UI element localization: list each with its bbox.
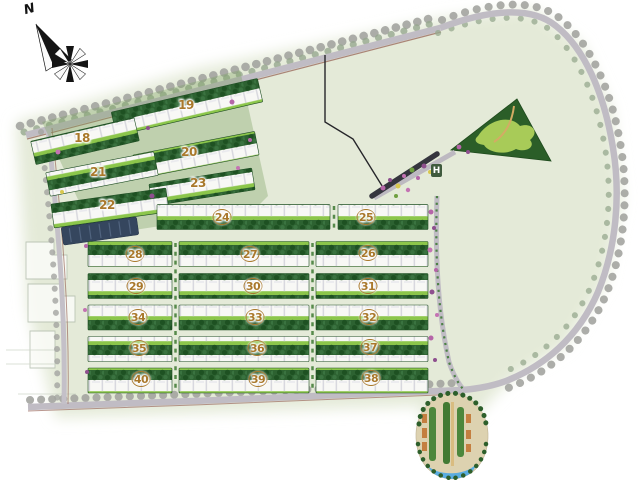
block-label-19[interactable]: 19 — [178, 99, 194, 111]
block-label-40[interactable]: 40 — [132, 371, 151, 387]
block-label-30[interactable]: 30 — [244, 278, 263, 294]
block-label-38[interactable]: 38 — [362, 370, 381, 386]
block-label-28[interactable]: 28 — [126, 246, 145, 262]
block-label-22[interactable]: 22 — [99, 199, 115, 211]
block-labels-layer: 1819202122232425262728293031323334353637… — [0, 0, 640, 480]
block-label-27[interactable]: 27 — [241, 246, 260, 262]
block-label-36[interactable]: 36 — [248, 340, 267, 356]
block-label-25[interactable]: 25 — [357, 209, 376, 225]
block-label-26[interactable]: 26 — [359, 245, 378, 261]
block-label-18[interactable]: 18 — [74, 132, 90, 144]
site-plan-map: N H 181920212223242526272829303132333435… — [0, 0, 640, 480]
block-label-34[interactable]: 34 — [129, 309, 148, 325]
block-label-39[interactable]: 39 — [249, 371, 268, 387]
block-label-31[interactable]: 31 — [359, 278, 378, 294]
block-label-29[interactable]: 29 — [127, 278, 146, 294]
block-label-37[interactable]: 37 — [361, 339, 380, 355]
block-label-35[interactable]: 35 — [130, 340, 149, 356]
block-label-23[interactable]: 23 — [190, 177, 206, 189]
block-label-21[interactable]: 21 — [90, 166, 106, 178]
block-label-24[interactable]: 24 — [213, 209, 232, 225]
block-label-20[interactable]: 20 — [181, 146, 197, 158]
block-label-32[interactable]: 32 — [360, 309, 379, 325]
block-label-33[interactable]: 33 — [246, 309, 265, 325]
